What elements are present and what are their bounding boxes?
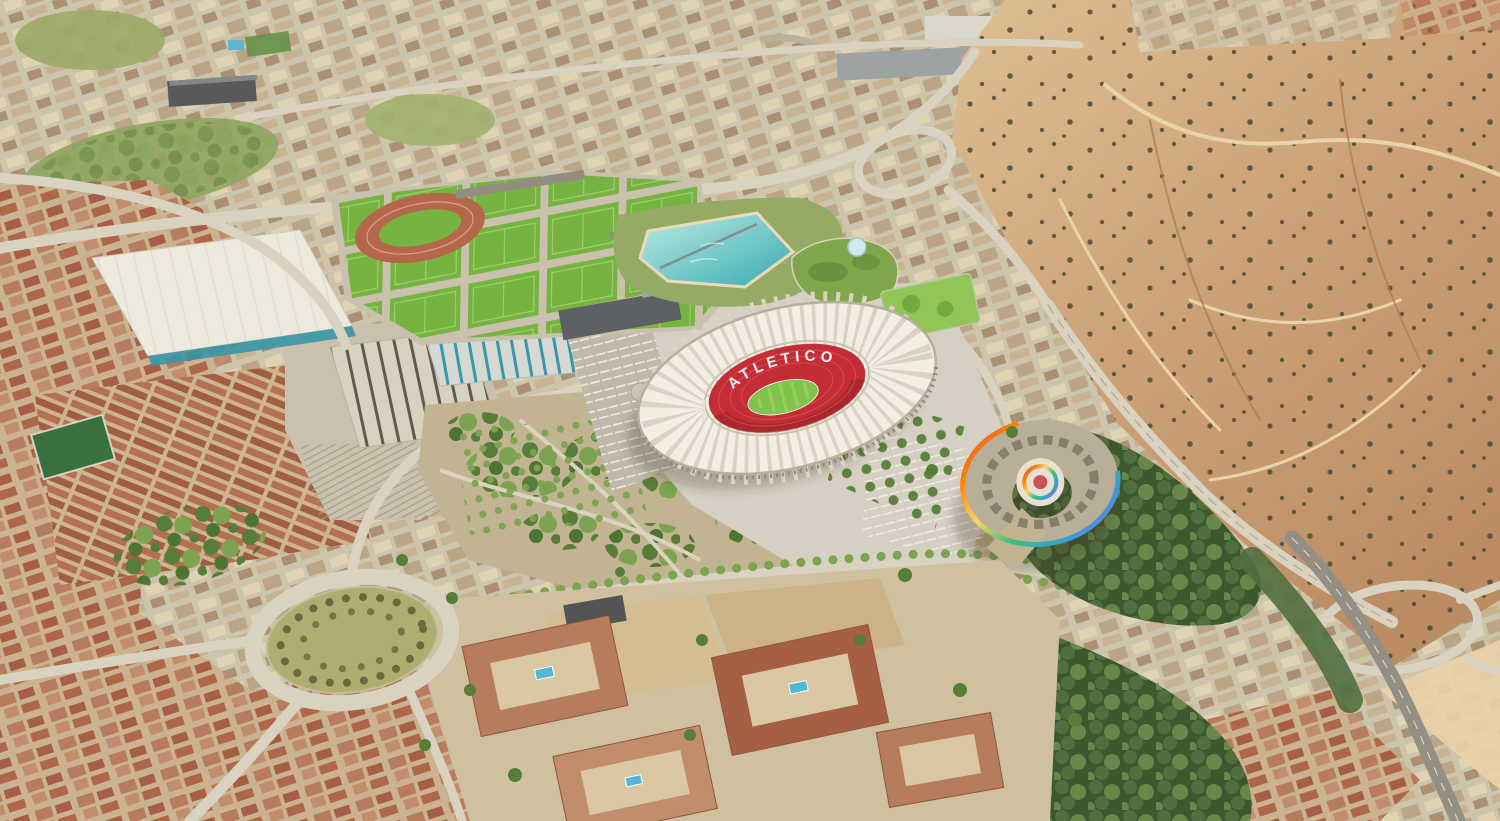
sunlight-tint bbox=[0, 0, 1500, 821]
aerial-render-masterplan: ATLETICO bbox=[0, 0, 1500, 821]
render-canvas: ATLETICO bbox=[0, 0, 1500, 821]
